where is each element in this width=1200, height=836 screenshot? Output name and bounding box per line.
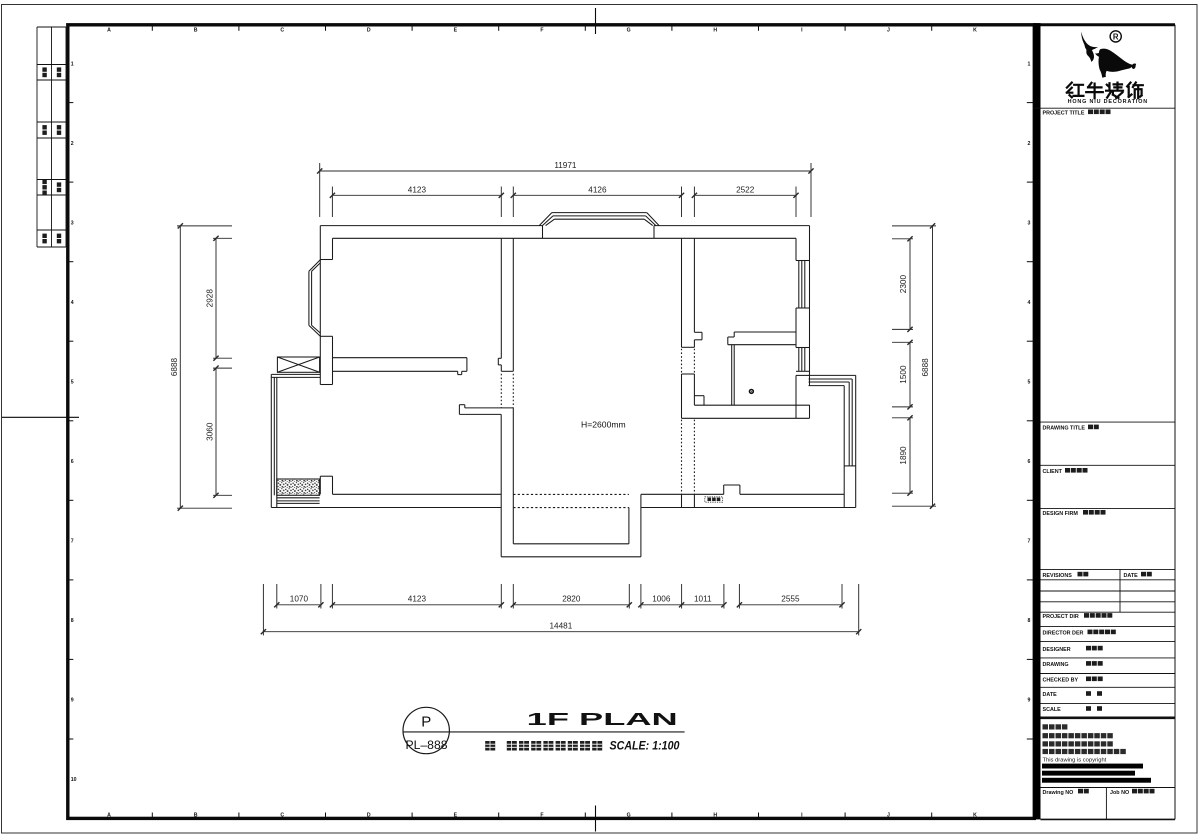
svg-text:4126: 4126 xyxy=(588,185,607,194)
svg-text:1: 1 xyxy=(71,61,74,67)
svg-text:6: 6 xyxy=(1028,459,1031,465)
svg-text:14481: 14481 xyxy=(550,621,573,630)
svg-text:SCALE: 1:100: SCALE: 1:100 xyxy=(610,741,681,753)
svg-text:F: F xyxy=(540,813,543,819)
svg-text:9: 9 xyxy=(1028,698,1031,704)
svg-text:This drawing is copyright: This drawing is copyright xyxy=(1043,757,1107,763)
svg-text:C: C xyxy=(280,813,284,819)
svg-text:2820: 2820 xyxy=(562,595,581,604)
svg-text:D: D xyxy=(367,28,371,34)
svg-text:K: K xyxy=(973,28,977,34)
svg-text:E: E xyxy=(454,813,458,819)
svg-text:PL–888: PL–888 xyxy=(405,738,447,752)
svg-text:1006: 1006 xyxy=(652,595,671,604)
svg-text:B: B xyxy=(194,813,198,819)
svg-text:A: A xyxy=(107,813,111,819)
svg-text:Job NO: Job NO xyxy=(1110,790,1129,796)
svg-text:8: 8 xyxy=(1028,618,1031,624)
svg-text:5: 5 xyxy=(1028,380,1031,386)
svg-text:DESIGN FIRM: DESIGN FIRM xyxy=(1043,511,1079,517)
svg-text:I: I xyxy=(801,28,803,34)
svg-text:5: 5 xyxy=(71,380,74,386)
svg-text:6888: 6888 xyxy=(170,357,179,376)
svg-text:7: 7 xyxy=(1028,539,1031,545)
svg-text:3060: 3060 xyxy=(206,422,215,441)
svg-text:H: H xyxy=(713,813,717,819)
svg-text:H=2600mm: H=2600mm xyxy=(581,419,626,429)
svg-text:G: G xyxy=(627,813,631,819)
svg-text:2928: 2928 xyxy=(206,289,215,308)
svg-text:E: E xyxy=(454,28,458,34)
svg-text:1F PLAN: 1F PLAN xyxy=(527,709,678,729)
svg-text:PROJECT TITLE: PROJECT TITLE xyxy=(1043,111,1085,117)
svg-text:C: C xyxy=(280,28,284,34)
svg-text:HONG NIU DECORATION: HONG NIU DECORATION xyxy=(1068,99,1148,105)
svg-text:G: G xyxy=(627,28,631,34)
svg-text:1: 1 xyxy=(1028,61,1031,67)
svg-text:Drawing NO: Drawing NO xyxy=(1043,790,1074,796)
svg-text:4: 4 xyxy=(1028,300,1031,306)
svg-text:1011: 1011 xyxy=(694,595,712,604)
svg-text:DRAWING: DRAWING xyxy=(1043,662,1069,668)
svg-text:4123: 4123 xyxy=(408,185,427,194)
svg-text:J: J xyxy=(887,28,890,34)
svg-text:CHECKED BY: CHECKED BY xyxy=(1043,678,1079,684)
svg-text:2522: 2522 xyxy=(736,185,755,194)
svg-text:REVISIONS: REVISIONS xyxy=(1043,573,1073,579)
svg-text:J: J xyxy=(887,813,890,819)
svg-text:10: 10 xyxy=(71,777,77,783)
svg-text:SCALE: SCALE xyxy=(1043,707,1062,713)
svg-text:2300: 2300 xyxy=(899,275,908,294)
svg-text:DATE: DATE xyxy=(1043,692,1058,698)
svg-text:H: H xyxy=(713,28,717,34)
svg-text:DRAWING TITLE: DRAWING TITLE xyxy=(1043,426,1086,432)
svg-text:1070: 1070 xyxy=(290,595,309,604)
svg-text:2555: 2555 xyxy=(781,595,800,604)
svg-text:F: F xyxy=(540,28,543,34)
svg-text:K: K xyxy=(973,813,977,819)
svg-text:6888: 6888 xyxy=(921,358,930,377)
svg-text:CLIENT: CLIENT xyxy=(1043,469,1063,475)
svg-text:6: 6 xyxy=(71,459,74,465)
svg-text:1500: 1500 xyxy=(899,365,908,384)
svg-text:A: A xyxy=(107,28,111,34)
svg-text:3: 3 xyxy=(1028,220,1031,226)
svg-text:2: 2 xyxy=(71,141,74,147)
svg-text:4123: 4123 xyxy=(408,595,427,604)
svg-text:1890: 1890 xyxy=(899,446,908,465)
svg-text:B: B xyxy=(194,28,198,34)
svg-text:4: 4 xyxy=(71,300,74,306)
svg-text:R: R xyxy=(1113,32,1119,41)
svg-text:8: 8 xyxy=(71,618,74,624)
svg-text:PROJECT DIR: PROJECT DIR xyxy=(1043,614,1079,620)
svg-text:2: 2 xyxy=(1028,141,1031,147)
svg-text:D: D xyxy=(367,813,371,819)
svg-text:9: 9 xyxy=(71,698,74,704)
svg-text:11971: 11971 xyxy=(554,161,577,170)
svg-text:7: 7 xyxy=(71,539,74,545)
svg-text:DATE: DATE xyxy=(1124,573,1139,579)
svg-text:DIRECTOR DER: DIRECTOR DER xyxy=(1043,631,1084,637)
svg-text:3: 3 xyxy=(71,220,74,226)
svg-text:P: P xyxy=(421,714,431,731)
svg-text:DESIGNER: DESIGNER xyxy=(1043,647,1071,653)
